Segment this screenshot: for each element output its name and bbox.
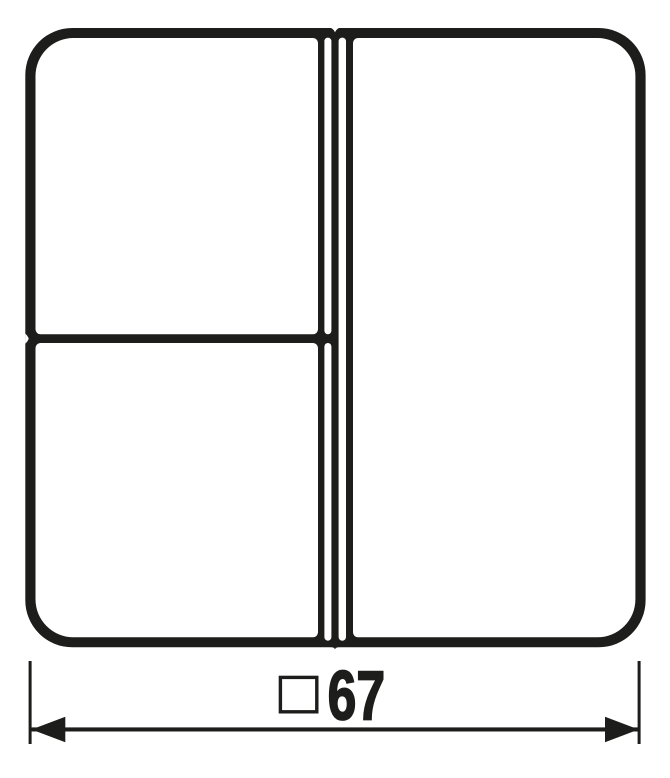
svg-text:67: 67 bbox=[328, 657, 386, 735]
